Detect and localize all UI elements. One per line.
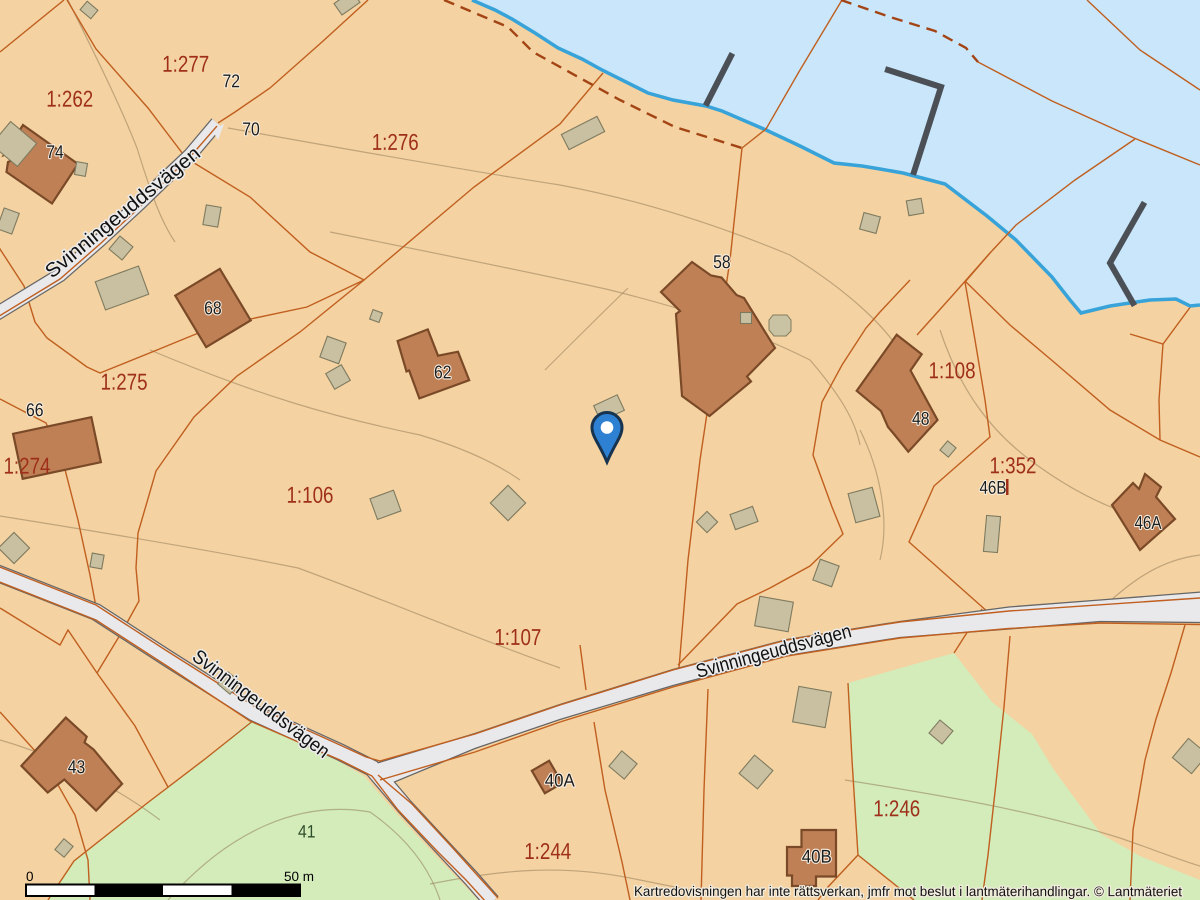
svg-text:72: 72 [222,70,240,91]
svg-text:48: 48 [912,408,930,429]
svg-text:1:277: 1:277 [162,51,209,77]
svg-text:43: 43 [68,756,86,777]
svg-text:74: 74 [46,141,64,162]
svg-text:1:262: 1:262 [46,86,93,112]
svg-text:58: 58 [713,251,731,272]
svg-text:40B: 40B [802,846,832,867]
svg-text:46B: 46B [979,477,1006,498]
svg-text:1:107: 1:107 [494,624,541,650]
svg-text:41: 41 [298,821,316,841]
svg-text:1:108: 1:108 [929,357,976,383]
svg-text:Kartredovisningen har inte rät: Kartredovisningen har inte rättsverkan, … [634,884,1182,899]
svg-text:1:352: 1:352 [989,452,1036,478]
svg-text:40A: 40A [545,769,576,790]
svg-text:68: 68 [204,297,222,318]
svg-text:70: 70 [242,118,260,139]
svg-text:1:246: 1:246 [873,795,920,821]
svg-text:1:106: 1:106 [286,482,333,508]
svg-text:1:274: 1:274 [3,453,50,479]
svg-text:66: 66 [26,399,44,420]
svg-text:0: 0 [26,869,34,884]
svg-text:1:275: 1:275 [101,369,148,395]
svg-text:46A: 46A [1134,512,1162,533]
svg-text:1:276: 1:276 [372,129,419,155]
svg-text:1:244: 1:244 [524,838,571,864]
svg-text:62: 62 [434,361,452,382]
svg-text:50 m: 50 m [284,869,314,884]
